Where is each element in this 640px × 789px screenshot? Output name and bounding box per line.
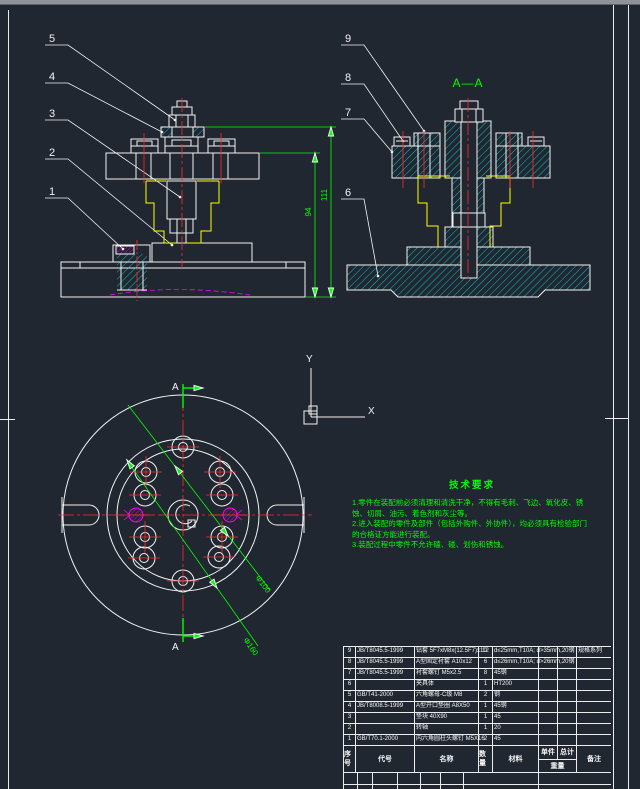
bom-cell-code xyxy=(356,724,415,734)
bom-cell-total xyxy=(558,691,577,701)
top-centerlines xyxy=(58,395,312,638)
bom-cell-remark xyxy=(577,702,611,712)
bom-row: 1GB/T70.1-2000内六角圆柱头螺钉 M5X16245 xyxy=(344,735,611,746)
bom-cell-unit xyxy=(539,658,558,668)
bom-cell-no: 2 xyxy=(344,724,356,734)
bom-cell-total xyxy=(558,713,577,723)
front-washer-nut xyxy=(161,101,204,137)
bom-cell-total xyxy=(558,724,577,734)
bom-rows: 9JB/T8045.5-1999钻套 5F7xM8x(12.5F7)x1012d… xyxy=(344,647,611,746)
bom-cell-unit xyxy=(539,724,558,734)
bom-cell-remark xyxy=(577,735,611,745)
front-flange xyxy=(152,243,252,262)
bom-header-unit-weight: 单件 xyxy=(539,746,558,759)
bom-cell-total xyxy=(558,647,577,657)
bom-header-weight: 单件 总计 重量 xyxy=(539,746,577,772)
technical-requirements-title: 技术要求 xyxy=(352,477,592,491)
balloon-9: 9 xyxy=(345,33,351,45)
bom-cell-qty: 1 xyxy=(479,702,493,712)
bom-header-total-weight: 总计 xyxy=(558,746,576,759)
ucs-y-label: Y xyxy=(306,354,313,365)
bom-cell-no: 6 xyxy=(344,680,356,690)
bom-header-qty: 数量 xyxy=(479,746,493,772)
bom-cell-unit xyxy=(539,713,558,723)
bom-cell-qty: 6 xyxy=(479,658,493,668)
bom-cell-name: 钻套 5F7xM8x(12.5F7)x10 xyxy=(415,647,479,657)
bom-cell-total xyxy=(558,680,577,690)
balloon-5: 5 xyxy=(49,33,55,45)
bom-cell-name: 六角螺母-C级 M8 xyxy=(415,691,479,701)
bom-header-remark: 备注 xyxy=(577,746,611,772)
bom-cell-material: 45 xyxy=(493,735,539,745)
bom-cell-name: A型开口垫圈 A8X50 xyxy=(415,702,479,712)
bom-cell-material: d≤26mm,T10A; d>26mm,20钢 xyxy=(493,658,539,668)
section-label-bottom: A xyxy=(172,642,179,653)
bom-cell-code xyxy=(356,713,415,723)
front-view: 5 4 3 2 1 xyxy=(45,33,336,301)
bom-cell-no: 3 xyxy=(344,713,356,723)
bom-cell-name: 衬套螺钉 M5x2.5 xyxy=(415,669,479,679)
dim-94: 94 xyxy=(304,207,313,216)
bom-cell-name: 内六角圆柱头螺钉 M5X16 xyxy=(415,735,479,745)
bom-row: 7JB/T8045.5-1999衬套螺钉 M5x2.5845钢 xyxy=(344,669,611,680)
title-block-row-2 xyxy=(344,785,611,789)
bom-cell-unit xyxy=(539,702,558,712)
front-drill-plate xyxy=(106,153,259,179)
bom-cell-unit xyxy=(539,647,558,657)
bom-row: 3垫块 40X90145 xyxy=(344,713,611,724)
bom-cell-qty: 2 xyxy=(479,735,493,745)
bom-cell-code: JB/T8045.5-1999 xyxy=(356,647,415,657)
bom-cell-material: 钢 xyxy=(493,691,539,701)
bom-cell-code xyxy=(356,680,415,690)
dim-phi160: Φ160 xyxy=(241,636,260,658)
bom-cell-remark xyxy=(577,691,611,701)
cad-viewport: 5 4 3 2 1 xyxy=(0,0,640,789)
bom-cell-remark xyxy=(577,658,611,668)
bom-header-code: 代号 xyxy=(356,746,415,772)
balloon-2: 2 xyxy=(49,147,55,159)
bom-cell-unit xyxy=(539,735,558,745)
bom-cell-total xyxy=(558,669,577,679)
front-mandrel xyxy=(167,181,196,243)
bom-cell-no: 8 xyxy=(344,658,356,668)
bom-cell-name: A型固定衬套 A10x12 xyxy=(415,658,479,668)
dim-phi100: Φ100 xyxy=(253,574,273,596)
bom-cell-material: d≤25mm,T10A; d>35mm,20钢 xyxy=(493,647,539,657)
bom-header-no: 序号 xyxy=(344,746,356,772)
bom-row: 8JB/T8045.5-1999A型固定衬套 A10x126d≤26mm,T10… xyxy=(344,658,611,669)
bom-cell-no: 7 xyxy=(344,669,356,679)
bom-cell-no: 4 xyxy=(344,702,356,712)
section-balloons: 9 8 7 6 xyxy=(345,33,351,199)
bom-row: 9JB/T8045.5-1999钻套 5F7xM8x(12.5F7)x1012d… xyxy=(344,647,611,658)
balloon-3: 3 xyxy=(49,108,55,120)
bom-cell-name: 垫块 40X90 xyxy=(415,713,479,723)
technical-requirement-item: 2.进入装配的零件及部件（包括外购件、外协件），均必须具有检验部门的合格证方能进… xyxy=(352,519,592,540)
bom-cell-code: GB/T41-2000 xyxy=(356,691,415,701)
technical-requirement-item: 1.零件在装配前必须清理和清洗干净，不得有毛刺、飞边、氧化皮、锈蚀、切屑、油污、… xyxy=(352,498,592,519)
bom-cell-name: 夹具体 xyxy=(415,680,479,690)
bom-header-name: 名称 xyxy=(415,746,479,772)
bom-row: 6夹具体1HT200 xyxy=(344,680,611,691)
front-clamp xyxy=(113,245,150,290)
bom-cell-unit xyxy=(539,691,558,701)
technical-requirements: 技术要求 1.零件在装配前必须清理和清洗干净，不得有毛刺、飞边、氧化皮、锈蚀、切… xyxy=(352,477,592,551)
bom-cell-code: JB/T8045.5-1999 xyxy=(356,669,415,679)
bom-cell-name: 转轴 xyxy=(415,724,479,734)
technical-requirements-list: 1.零件在装配前必须清理和清洗干净，不得有毛刺、飞边、氧化皮、锈蚀、切屑、油污、… xyxy=(352,498,592,551)
ucs-x-label: X xyxy=(368,406,375,417)
bom-table: 9JB/T8045.5-1999钻套 5F7xM8x(12.5F7)x1012d… xyxy=(343,646,611,789)
bom-cell-unit xyxy=(539,669,558,679)
front-yellow-column xyxy=(146,181,219,243)
bom-cell-unit xyxy=(539,680,558,690)
bom-cell-no: 9 xyxy=(344,647,356,657)
balloon-1: 1 xyxy=(49,186,55,198)
bom-header-material: 材料 xyxy=(493,746,539,772)
section-label-top: A xyxy=(172,382,179,393)
bom-cell-qty: 12 xyxy=(479,647,493,657)
bom-cell-no: 1 xyxy=(344,735,356,745)
top-section-line xyxy=(183,384,199,642)
bom-cell-qty: 2 xyxy=(479,691,493,701)
bom-cell-material: 45 xyxy=(493,713,539,723)
bom-cell-qty: 1 xyxy=(479,713,493,723)
bom-cell-total xyxy=(558,658,577,668)
section-title: A—A xyxy=(452,76,483,90)
bom-cell-code: JB/T8045.5-1999 xyxy=(356,658,415,668)
bom-cell-material: 45钢 xyxy=(493,669,539,679)
title-block-row-1 xyxy=(344,773,611,785)
bom-cell-qty: 8 xyxy=(479,669,493,679)
dim-111: 111 xyxy=(320,188,329,201)
balloon-4: 4 xyxy=(49,71,55,83)
bom-cell-material: 45钢 xyxy=(493,702,539,712)
front-bushings xyxy=(131,137,235,153)
bom-cell-material: 20 xyxy=(493,724,539,734)
technical-requirement-item: 3.装配过程中零件不允许磕、碰、划伤和锈蚀。 xyxy=(352,540,592,551)
front-base-plate xyxy=(61,262,305,297)
bom-cell-qty: 1 xyxy=(479,680,493,690)
bom-row: 5GB/T41-2000六角螺母-C级 M82钢 xyxy=(344,691,611,702)
front-view-leaders xyxy=(45,45,181,250)
bom-cell-total xyxy=(558,702,577,712)
bom-cell-material: HT200 xyxy=(493,680,539,690)
balloon-7: 7 xyxy=(345,107,351,119)
balloon-8: 8 xyxy=(345,72,351,84)
bom-row: 2转轴120 xyxy=(344,724,611,735)
bom-header-row: 序号 代号 名称 数量 材料 单件 总计 重量 备注 xyxy=(344,746,611,773)
bom-cell-total xyxy=(558,735,577,745)
bom-row: 4JB/T8008.5-1999A型开口垫圈 A8X50145钢 xyxy=(344,702,611,713)
bom-cell-remark xyxy=(577,713,611,723)
bom-cell-remark xyxy=(577,669,611,679)
bom-cell-remark xyxy=(577,680,611,690)
bom-cell-code: JB/T8008.5-1999 xyxy=(356,702,415,712)
front-view-balloons: 5 4 3 2 1 xyxy=(49,33,55,198)
bom-cell-qty: 1 xyxy=(479,724,493,734)
bom-cell-remark: 规格系列 xyxy=(577,647,611,657)
bom-cell-code: GB/T70.1-2000 xyxy=(356,735,415,745)
bom-header-weight-label: 重量 xyxy=(539,760,576,772)
ucs-icon: Y X xyxy=(304,354,375,424)
bom-cell-no: 5 xyxy=(344,691,356,701)
balloon-6: 6 xyxy=(345,187,351,199)
section-view: A—A 9 8 7 6 xyxy=(341,33,590,297)
top-view: A A Φ100 Φ160 xyxy=(58,382,312,658)
bom-cell-remark xyxy=(577,724,611,734)
